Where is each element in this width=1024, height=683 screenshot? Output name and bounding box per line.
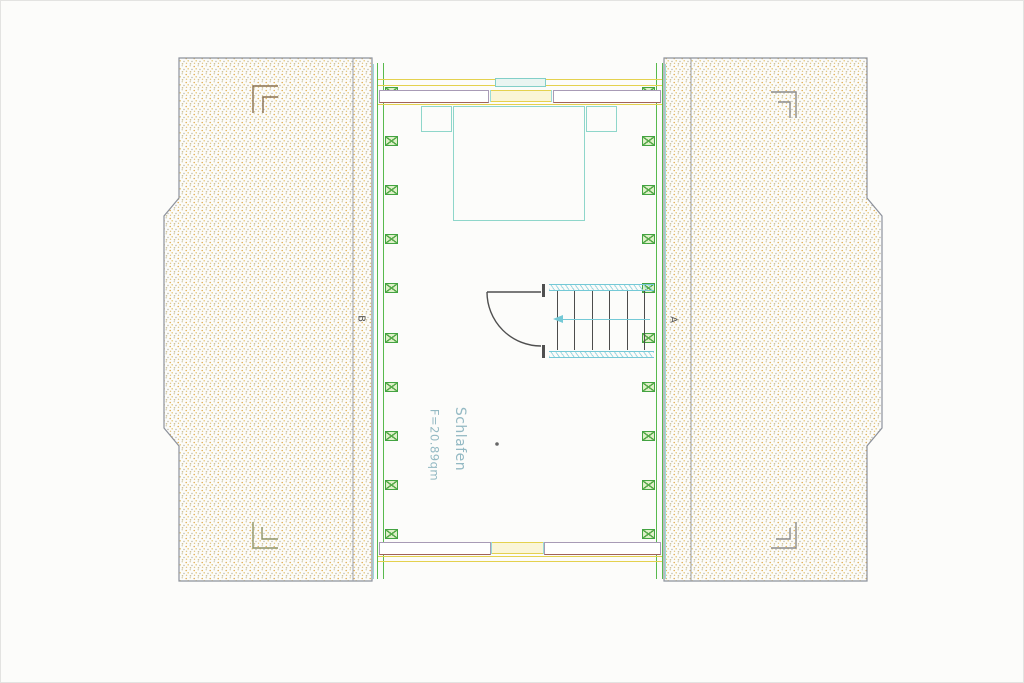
rafter-block: [385, 185, 398, 195]
room-center-point: [495, 442, 499, 446]
door-jamb-top: [542, 284, 545, 297]
nightstand-left: [421, 106, 452, 132]
rafter-block: [385, 136, 398, 146]
right-wall-inner-face: [656, 63, 657, 579]
rafter-block: [642, 185, 655, 195]
roof-area-left: [164, 58, 372, 581]
rafter-block: [642, 234, 655, 244]
right-wall-outer-face: [662, 63, 663, 579]
nightstand-right: [586, 106, 617, 132]
room-area-label: F=20.89qm: [428, 393, 442, 498]
rafter-block: [642, 382, 655, 392]
rafter-block: [642, 480, 655, 490]
bottom-knee-wall-right: [544, 542, 661, 555]
bottom-wall-eave-line-1: [378, 556, 662, 557]
door-swing: [487, 292, 541, 346]
stair-rail-top: [549, 284, 654, 291]
rafter-block: [642, 136, 655, 146]
bottom-knee-wall-left: [379, 542, 491, 555]
rafter-block: [385, 529, 398, 539]
bottom-wall-opening-edge-right: [543, 542, 544, 554]
top-wall-window: [495, 78, 546, 87]
left-wall-inner-face: [383, 63, 384, 579]
bottom-wall-opening-edge-left: [491, 542, 492, 554]
door-jamb-bottom: [542, 345, 545, 358]
bottom-wall-opening: [491, 542, 544, 554]
room-name-label: Schlafen: [452, 384, 468, 494]
stair-tread: [627, 291, 628, 350]
rafter-block: [385, 480, 398, 490]
rafter-block: [385, 283, 398, 293]
stair-direction-arrow: [553, 315, 563, 323]
bed: [453, 106, 585, 221]
rafter-block: [385, 234, 398, 244]
right-wall-inner-line: [665, 64, 666, 579]
rafter-block: [642, 431, 655, 441]
stair-tread: [609, 291, 610, 350]
top-knee-wall-right: [553, 90, 661, 103]
top-wall-inner-line: [378, 104, 662, 105]
rafter-block: [385, 382, 398, 392]
stair-direction-line: [562, 319, 650, 320]
stair-tread: [592, 291, 593, 350]
top-wall-opening: [490, 90, 552, 102]
left-wall-outer-face: [377, 63, 378, 579]
floor-plan-sheet: Schlafen F=20.89qm B A: [0, 0, 1024, 683]
section-marker-a: A: [668, 308, 679, 332]
stair-tread: [644, 291, 645, 350]
top-knee-wall-left: [379, 90, 489, 103]
stair-tread: [574, 291, 575, 350]
section-marker-b: B: [356, 307, 367, 331]
rafter-block: [642, 529, 655, 539]
left-wall-inner-line: [373, 64, 374, 579]
rafter-block: [385, 431, 398, 441]
top-wall-opening-edge-left: [490, 90, 491, 102]
bottom-wall-eave-line-2: [378, 561, 662, 562]
stair-rail-bottom: [549, 351, 654, 358]
top-wall-opening-edge-right: [551, 90, 552, 102]
roof-area-right: [664, 58, 882, 581]
rafter-block: [385, 333, 398, 343]
